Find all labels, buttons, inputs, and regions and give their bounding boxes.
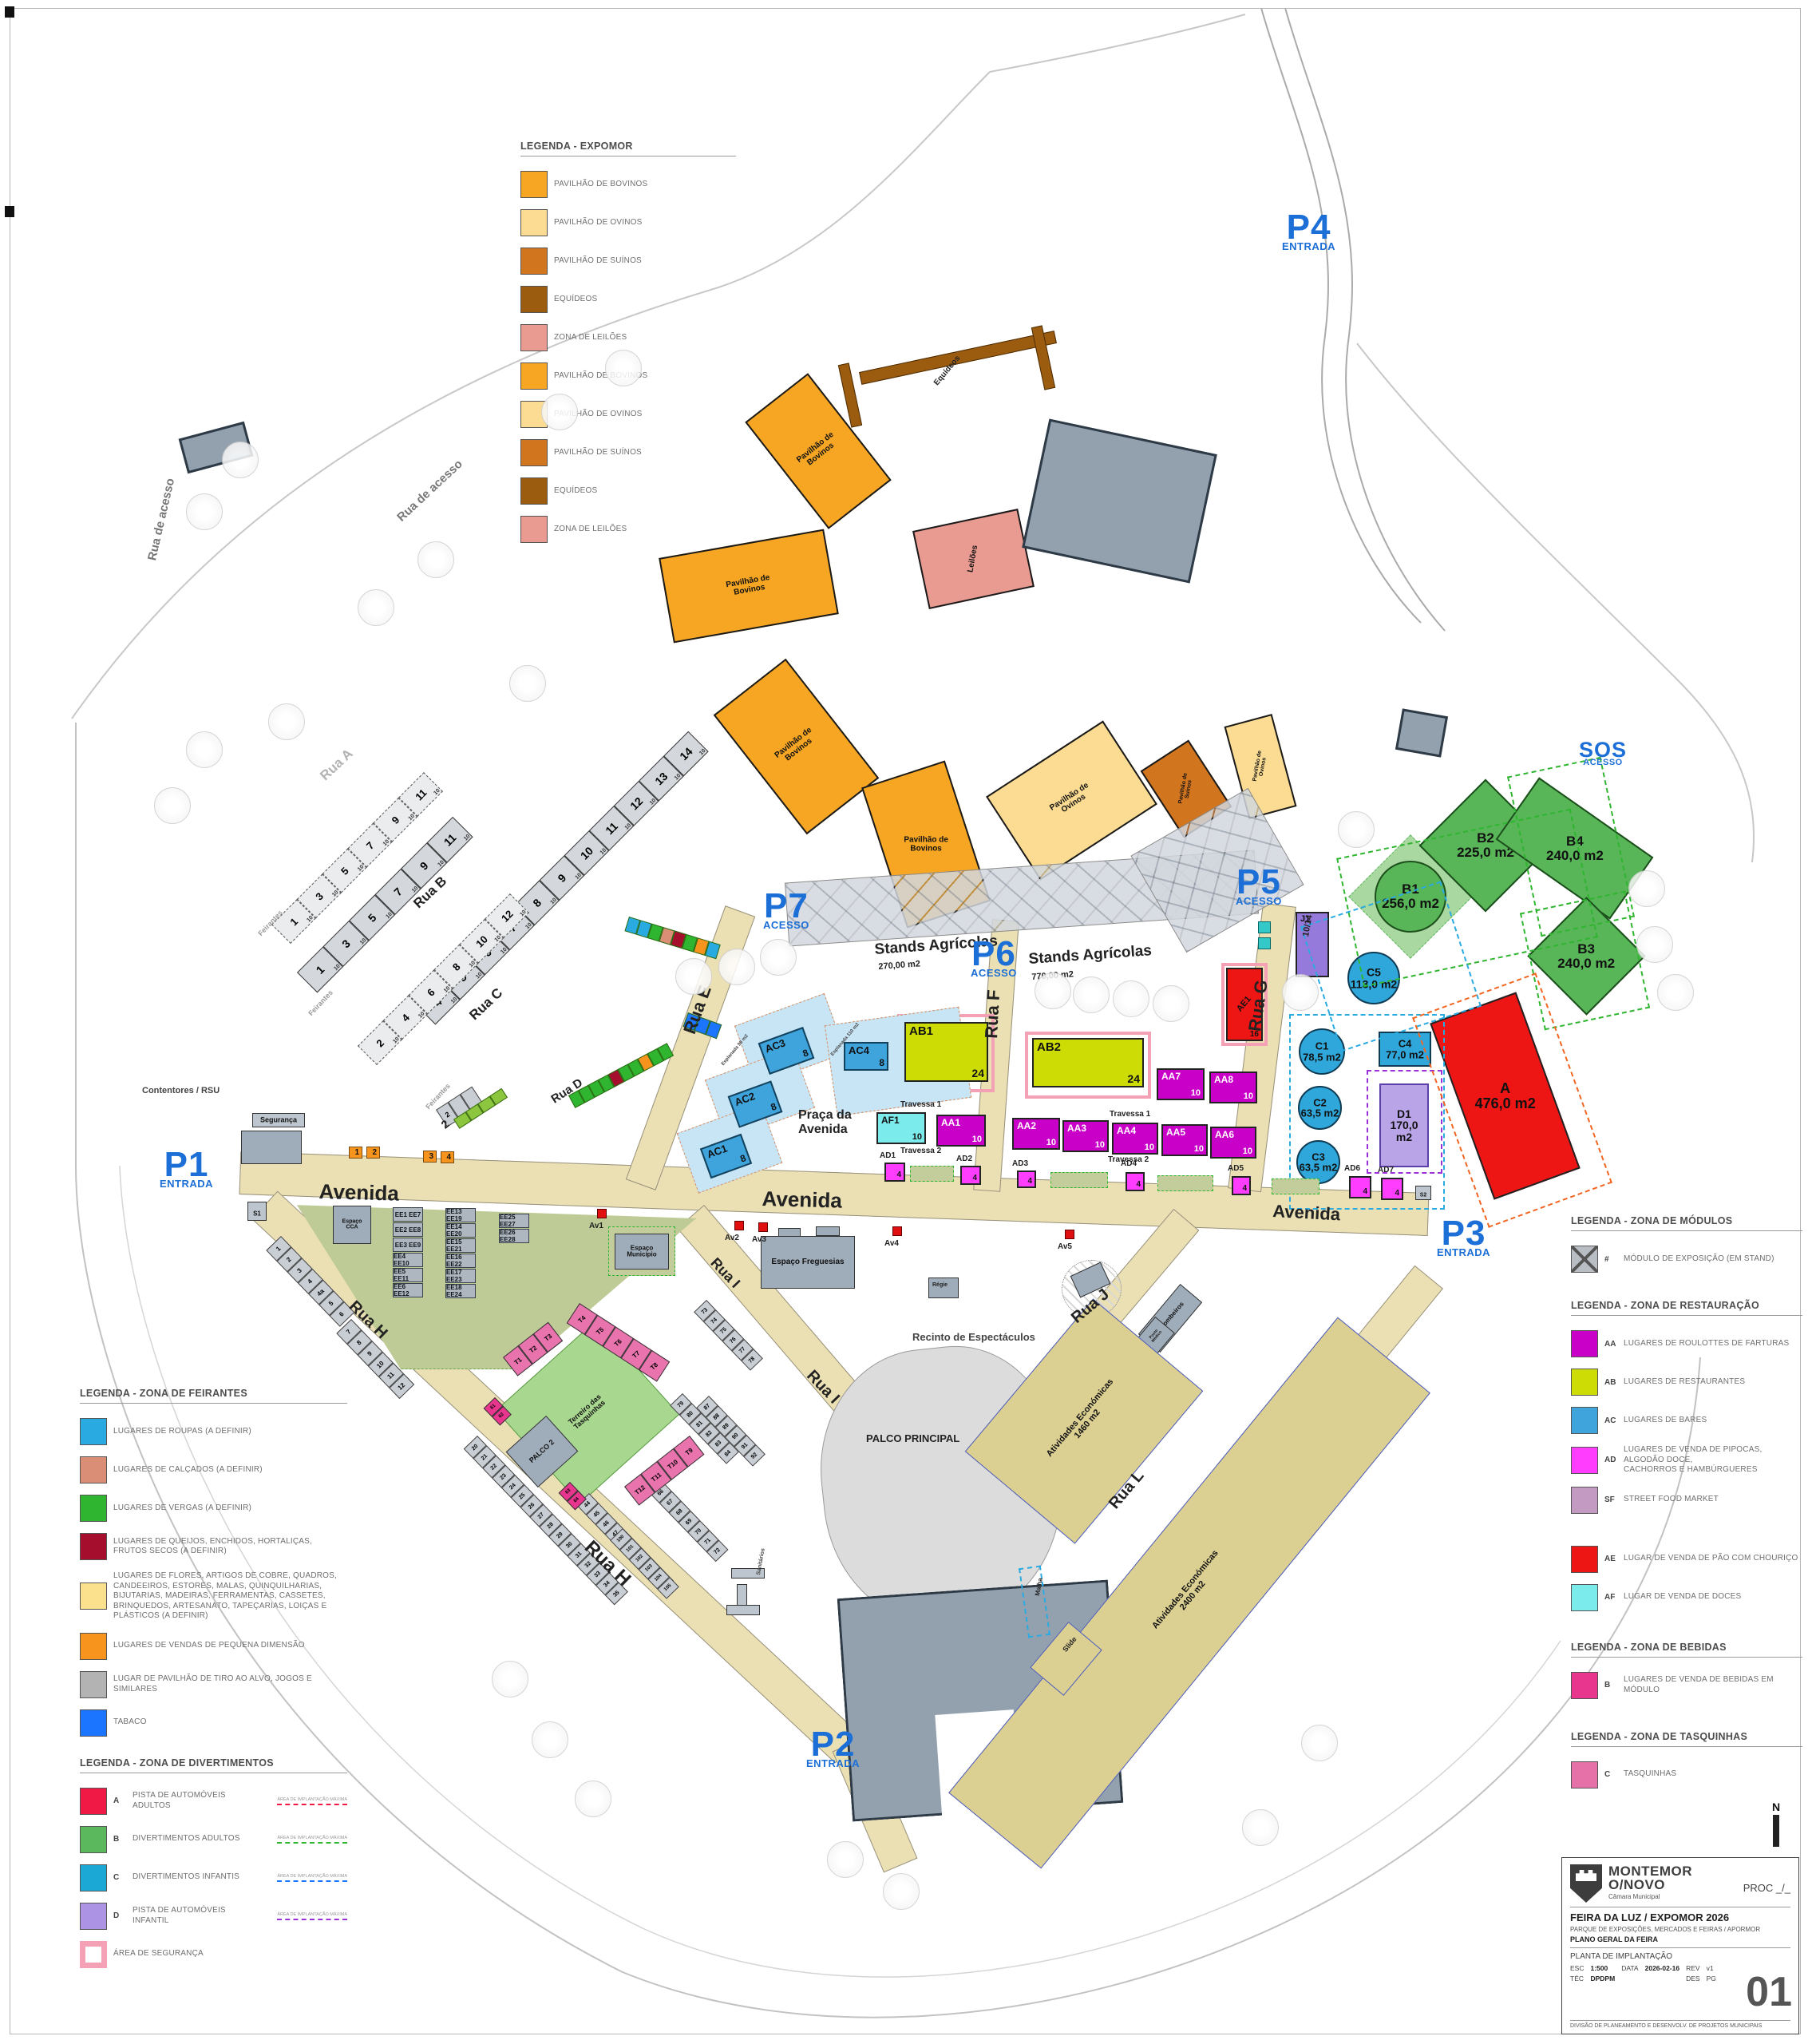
zone-ac4-label: AC4 — [849, 1045, 869, 1056]
tree — [1338, 811, 1375, 848]
swatch — [1571, 1672, 1598, 1699]
legend-security-item: ÁREA DE SEGURANÇA — [80, 1941, 347, 1968]
label: PISTA DE AUTOMÓVEIS INFANTIL — [133, 1906, 226, 1926]
zone-af1: AF110 — [876, 1112, 926, 1144]
lg-feirantes-items-item-7: TABACO — [80, 1709, 347, 1737]
seguranca-label-box-label: Segurança — [253, 1116, 304, 1123]
legend-left-column: LEGENDA - ZONA DE FEIRANTES LUGARES DE R… — [80, 1388, 347, 1968]
zone-aa6-label: AA6 — [1215, 1130, 1234, 1140]
av5-marker — [1065, 1230, 1074, 1239]
zone-af1-label: AF1 — [881, 1115, 900, 1126]
max-area-note: ÁREA DE IMPLANTAÇÃO MÁXIMA — [277, 1836, 347, 1844]
entrance-p6: P6ACESSO — [971, 939, 1017, 977]
omini-1: 1 — [349, 1147, 362, 1159]
tree — [760, 939, 797, 976]
tree — [1636, 926, 1673, 963]
zone-aa4-label: AA4 — [1117, 1126, 1136, 1136]
av4-marker — [892, 1226, 902, 1236]
tree — [883, 1873, 920, 1910]
data-value: 2026-02-16 — [1645, 1964, 1679, 1972]
espaco-cca-label: Espaço CCA — [334, 1219, 370, 1231]
entrance-p6-type: ACESSO — [971, 969, 1017, 977]
label: LUGARES DE VENDAS DE PEQUENA DIMENSÃO — [113, 1641, 305, 1651]
espaco-municipio-label: Espaço Município — [615, 1245, 668, 1258]
legend-bebidas-items: BLUGARES DE VENDA DE BEBIDAS EM MÓDULO — [1571, 1661, 1802, 1699]
tree — [1073, 976, 1110, 1013]
tree — [532, 1721, 568, 1758]
rev-label: REV — [1686, 1963, 1706, 1973]
code: B — [113, 1835, 126, 1844]
s1-box: S1 — [247, 1202, 267, 1221]
entrance-p7-type: ACESSO — [763, 921, 809, 929]
swatch — [80, 1495, 107, 1522]
map-label-pra-a-da-avenida: Praça da Avenida — [798, 1108, 852, 1136]
tree — [492, 1661, 528, 1697]
lg-feirantes-items-item-6: LUGAR DE PAVILHÃO DE TIRO AO ALVO, JOGOS… — [80, 1671, 347, 1698]
espaco-freguesias-tab2 — [816, 1226, 840, 1236]
legend-expomor-item-1: PAVILHÃO DE OVINOS — [520, 209, 736, 236]
swatch — [1571, 1761, 1598, 1788]
swatch — [80, 1941, 107, 1968]
label: TASQUINHAS — [1624, 1769, 1676, 1780]
tree — [509, 665, 546, 702]
zone-aa2-count: 10 — [1046, 1138, 1056, 1147]
legend-tasquinhas-title: LEGENDA - ZONA DE TASQUINHAS — [1571, 1731, 1802, 1747]
code: AB — [1604, 1378, 1617, 1387]
legend-restauracao-items: AALUGARES DE ROULOTTES DE FARTURASABLUGA… — [1571, 1319, 1802, 1611]
zone-aa8-count: 10 — [1244, 1091, 1253, 1101]
tree — [1242, 1809, 1279, 1846]
code: C — [113, 1873, 126, 1882]
lg-rest-items-item-6: AFLUGAR DE VENDA DE DOCES — [1571, 1584, 1802, 1611]
map-label-ad1: AD1 — [880, 1151, 896, 1160]
des-value: PG — [1707, 1973, 1723, 1983]
omini-3: 3 — [423, 1151, 437, 1163]
data-label: DATA — [1621, 1963, 1644, 1973]
code: C — [1604, 1770, 1617, 1779]
tree — [827, 1841, 864, 1878]
swatch — [80, 1633, 107, 1660]
legend-expomor-items: PAVILHÃO DE BOVINOSPAVILHÃO DE OVINOSPAV… — [520, 160, 736, 351]
omini-2-count: 2 — [372, 1148, 377, 1157]
legend-feirantes-items: LUGARES DE ROUPAS (A DEFINIR)LUGARES DE … — [80, 1407, 347, 1737]
lg-divert-items-item-0: APISTA DE AUTOMÓVEIS ADULTOSÁREA DE IMPL… — [80, 1788, 347, 1815]
max-area-note: ÁREA DE IMPLANTAÇÃO MÁXIMA — [277, 1797, 347, 1805]
map-label-travessa-2: Travessa 2 — [900, 1147, 941, 1155]
ee-cluster-3-cell-EE26 EE28: EE26 EE28 — [499, 1229, 529, 1243]
code: A — [113, 1796, 126, 1805]
zone-ad7-count: 4 — [1395, 1189, 1399, 1198]
label: LUGAR DE VENDA DE PÃO COM CHOURIÇO — [1624, 1554, 1798, 1564]
lg-rest-items-item-2: ACLUGARES DE BARES — [1571, 1407, 1802, 1434]
code: # — [1604, 1255, 1617, 1264]
kgrn-4 — [1272, 1178, 1319, 1194]
lg-expomor-item-2: PAVILHÃO DE SUÍNOS — [520, 439, 736, 466]
map-label-avenida: Avenida — [1272, 1202, 1341, 1225]
tree — [186, 731, 223, 768]
zone-ad1-count: 4 — [896, 1171, 901, 1179]
swatch — [520, 324, 548, 351]
label: PAVILHÃO DE SUÍNOS — [554, 448, 642, 458]
zone-aa7-label: AA7 — [1161, 1072, 1181, 1082]
lg-feirantes-items-item-5: LUGARES DE VENDAS DE PEQUENA DIMENSÃO — [80, 1633, 347, 1660]
legend-tasquinhas-items: CTASQUINHAS — [1571, 1750, 1802, 1788]
lg-rest-items-item-1: ABLUGARES DE RESTAURANTES — [1571, 1369, 1802, 1396]
code: AD — [1604, 1456, 1617, 1464]
tree — [1628, 870, 1665, 907]
lg-divert-items-item-1: BDIVERTIMENTOS ADULTOSÁREA DE IMPLANTAÇÃ… — [80, 1826, 347, 1853]
tree — [154, 787, 191, 824]
swatch — [520, 209, 548, 236]
label: LUGARES DE FLORES, ARTIGOS DE COBRE, QUA… — [113, 1571, 337, 1622]
map-label-av4: Av4 — [884, 1239, 899, 1248]
zone-ad5-count: 4 — [1242, 1184, 1247, 1193]
label: LUGARES DE VERGAS (A DEFINIR) — [113, 1503, 251, 1514]
pav-bovinos-2-label: Pavilhão de Bovinos — [667, 564, 832, 608]
swatch — [80, 1456, 107, 1483]
lg-rest-items-item-4: SFSTREET FOOD MARKET — [1571, 1487, 1802, 1514]
label: TABACO — [113, 1717, 147, 1728]
brand-text: MONTEMOR O/NOVO Câmara Municipal — [1608, 1864, 1692, 1900]
meta-table: ESC1:500 DATA2026-02-16 REVv1 TÉCDPDPM D… — [1570, 1963, 1723, 1983]
swatch — [520, 286, 548, 313]
entrance-p7: P7ACESSO — [763, 891, 809, 929]
lg-feirantes-items-item-2: LUGARES DE VERGAS (A DEFINIR) — [80, 1495, 347, 1522]
kgrn-3 — [1157, 1175, 1213, 1191]
sanitarios-3 — [726, 1605, 760, 1615]
tree — [186, 493, 223, 530]
swatch — [1571, 1407, 1598, 1434]
project-subtitle: PARQUE DE EXPOSIÇÕES, MERCADOS E FEIRAS … — [1570, 1926, 1790, 1933]
map-label-av5: Av5 — [1058, 1242, 1072, 1251]
label: LUGARES DE VENDA DE PIPOCAS, ALGODÃO DOC… — [1624, 1445, 1802, 1476]
zone-ad7: 4 — [1381, 1178, 1403, 1200]
pav-ovinos-2-label: Pavilhão de Ovinos — [1251, 743, 1271, 790]
zone-ad6-count: 4 — [1363, 1187, 1367, 1196]
jo1 — [1258, 921, 1271, 933]
zone-ad2-count: 4 — [972, 1174, 977, 1182]
rev-value: v1 — [1707, 1963, 1723, 1973]
label: ZONA DE LEILÕES — [554, 333, 627, 343]
atividades-1460-label: Atividades Económicas 1460 m2 — [1031, 1361, 1137, 1481]
zone-af1-count: 10 — [912, 1132, 922, 1142]
lg-rest-items-item-0: AALUGARES DE ROULOTTES DE FARTURAS — [1571, 1330, 1802, 1357]
zone-ad6: 4 — [1349, 1176, 1371, 1198]
ee-cluster-3-cell-EE25 EE27: EE25 EE27 — [499, 1214, 529, 1228]
atividades-2400-label: Atividades Económicas 2400 m2 — [1145, 1541, 1234, 1644]
legend-modulos-items: #MÓDULO DE EXPOSIÇÃO (EM STAND) — [1571, 1234, 1802, 1273]
map-label-avenida: Avenida — [318, 1180, 399, 1205]
tree — [417, 541, 454, 578]
swatch — [1571, 1584, 1598, 1611]
zone-ad3-count: 4 — [1027, 1177, 1032, 1186]
kgrn-2 — [1050, 1172, 1108, 1188]
swatch — [80, 1788, 107, 1815]
ee-cluster-2: EE13 EE19EE14 EE20EE15 EE21EE16 EE22EE17… — [445, 1208, 476, 1299]
jo2 — [1258, 937, 1271, 949]
fold-mark — [5, 6, 14, 18]
swatch — [80, 1533, 107, 1560]
espaco-cca: Espaço CCA — [333, 1206, 371, 1244]
zone-aa8-label: AA8 — [1214, 1075, 1233, 1085]
ee-cluster-1-cell-EE5 EE11: EE5 EE11 — [393, 1268, 423, 1282]
pav-suinos-label: Pavilhão de Suínos — [1176, 761, 1197, 817]
zona-leiloes-label: Leilões — [960, 507, 987, 612]
swatch — [1571, 1246, 1598, 1273]
espaco-municipio: Espaço Município — [615, 1234, 669, 1270]
map-label-travessa-1: Travessa 1 — [900, 1100, 941, 1109]
swatch — [1571, 1447, 1598, 1474]
municipality-logo — [1570, 1864, 1602, 1903]
label: LUGAR DE PAVILHÃO DE TIRO AO ALVO, JOGOS… — [113, 1674, 312, 1694]
legend-expomor-item-0: PAVILHÃO DE BOVINOS — [520, 171, 736, 198]
lg-feirantes-items-item-3: LUGARES DE QUEIJOS, ENCHIDOS, HORTALIÇAS… — [80, 1533, 347, 1560]
swatch — [80, 1671, 107, 1698]
map-label-rua-f: Rua F — [982, 989, 1003, 1039]
map-label-ad4: AD4 — [1121, 1159, 1137, 1168]
legend-expomor: LEGENDA - EXPOMOR PAVILHÃO DE BOVINOSPAV… — [520, 141, 736, 543]
ee-cluster-1-cell-EE1 EE7: EE1 EE7 — [393, 1207, 423, 1222]
zone-ac4-count: 8 — [879, 1057, 884, 1068]
omini-2: 2 — [366, 1147, 380, 1159]
tree — [605, 350, 642, 386]
tree — [358, 589, 394, 626]
code: AC — [1604, 1416, 1617, 1425]
proc-value: _/_ — [1776, 1882, 1790, 1894]
s2-box-label: S2 — [1416, 1187, 1430, 1199]
zone-ad5: 4 — [1232, 1176, 1251, 1195]
building-e — [1395, 708, 1448, 757]
swatch — [80, 1709, 107, 1737]
entrance-p7-code: P7 — [763, 891, 809, 921]
zone-aa3-count: 10 — [1095, 1140, 1105, 1150]
lg-modulos-items-item-0: #MÓDULO DE EXPOSIÇÃO (EM STAND) — [1571, 1246, 1802, 1273]
swatch — [1571, 1546, 1598, 1573]
legend-divertimentos-items: APISTA DE AUTOMÓVEIS ADULTOSÁREA DE IMPL… — [80, 1777, 347, 1968]
omini-1-count: 1 — [354, 1148, 359, 1157]
av2-marker — [734, 1221, 744, 1230]
entrance-p1: P1ENTRADA — [160, 1150, 213, 1188]
max-area-note: ÁREA DE IMPLANTAÇÃO MÁXIMA — [277, 1912, 347, 1920]
swatch — [80, 1418, 107, 1445]
s1-box-label: S1 — [248, 1205, 266, 1218]
code: AA — [1604, 1340, 1617, 1349]
zone-aa5: AA510 — [1161, 1124, 1208, 1156]
entrance-sos-type: ACESSO — [1579, 759, 1627, 766]
av3-marker — [758, 1222, 768, 1232]
ee-cluster-2-cell-EE15 EE21: EE15 EE21 — [445, 1238, 476, 1253]
zone-aa2: AA210 — [1012, 1118, 1060, 1150]
label: LUGARES DE CALÇADOS (A DEFINIR) — [113, 1465, 263, 1476]
swatch — [80, 1903, 107, 1930]
legend-modulos-title: LEGENDA - ZONA DE MÓDULOS — [1571, 1215, 1802, 1231]
map-label-ad5: AD5 — [1228, 1164, 1244, 1173]
map-label-travessa-1: Travessa 1 — [1110, 1110, 1150, 1119]
zone-ad3: 4 — [1017, 1171, 1036, 1188]
palco-2-label: PALCO 2 — [520, 1431, 564, 1472]
legend-bebidas-title: LEGENDA - ZONA DE BEBIDAS — [1571, 1642, 1802, 1658]
zone-ab2: AB224 — [1032, 1038, 1144, 1087]
zone-ac4: AC48 — [844, 1042, 888, 1071]
ee-cluster-1: EE1 EE7EE2 EE8EE3 EE9EE4 EE10EE5 EE11EE6… — [393, 1207, 423, 1298]
entrance-sos-code: SOS — [1579, 741, 1627, 759]
legend-expomor-title: LEGENDA - EXPOMOR — [520, 141, 736, 156]
seguranca-building — [241, 1131, 302, 1164]
entrance-p1-type: ENTRADA — [160, 1179, 213, 1188]
zone-ab1-label: AB1 — [909, 1025, 933, 1038]
lg-feirantes-items-item-4: LUGARES DE FLORES, ARTIGOS DE COBRE, QUA… — [80, 1571, 347, 1622]
ee-cluster-2-cell-EE18 EE24: EE18 EE24 — [445, 1284, 476, 1298]
label: EQUÍDEOS — [554, 295, 597, 305]
zone-aa3: AA310 — [1062, 1120, 1109, 1152]
zone-aa6-count: 10 — [1243, 1147, 1252, 1156]
map-label-recinto-de-espect-culos: Recinto de Espectáculos — [912, 1332, 1035, 1343]
zone-aa4-count: 10 — [1145, 1143, 1154, 1152]
map-label-avenida: Avenida — [762, 1187, 842, 1212]
entrance-p3-code: P3 — [1437, 1218, 1490, 1248]
zone-aa8: AA810 — [1209, 1072, 1257, 1103]
zone-ac1-count: 8 — [738, 1152, 747, 1164]
tree — [541, 394, 578, 430]
label: LUGARES DE ROULOTTES DE FARTURAS — [1624, 1339, 1789, 1349]
tree — [1282, 974, 1319, 1011]
ee-cluster-2-cell-EE14 EE20: EE14 EE20 — [445, 1223, 476, 1238]
zone-aa4: AA410 — [1112, 1123, 1158, 1155]
division-line: DIVISÃO DE PLANEAMENTO E DESENVOLV. DE P… — [1570, 2020, 1790, 2029]
label: LUGAR DE VENDA DE DOCES — [1624, 1592, 1741, 1602]
zone-ab1: AB124 — [904, 1022, 988, 1082]
zone-aa6: AA610 — [1210, 1127, 1256, 1159]
zone-aa7-count: 10 — [1191, 1088, 1201, 1098]
zone-ab2-count: 24 — [1127, 1072, 1140, 1085]
proc-label: PROC — [1743, 1882, 1774, 1894]
entrance-p3-type: ENTRADA — [1437, 1248, 1490, 1257]
legend-feirantes-title: LEGENDA - ZONA DE FEIRANTES — [80, 1388, 347, 1404]
s2-box: S2 — [1415, 1186, 1431, 1200]
entrance-p4-code: P4 — [1282, 212, 1335, 242]
drawing-type: PLANTA DE IMPLANTAÇÃO — [1570, 1952, 1790, 1961]
des-label: DES — [1686, 1973, 1706, 1983]
lg-expomor-item-3: EQUÍDEOS — [520, 477, 736, 505]
tec-label: TÉC — [1570, 1973, 1590, 1983]
swatch — [520, 516, 548, 543]
zone-aa3-label: AA3 — [1067, 1123, 1086, 1134]
project-title: FEIRA DA LUZ / EXPOMOR 2026 — [1570, 1911, 1790, 1923]
ee-cluster-2-cell-EE16 EE22: EE16 EE22 — [445, 1254, 476, 1268]
entrance-p5-type: ACESSO — [1236, 897, 1282, 905]
label: LUGARES DE VENDA DE BEBIDAS EM MÓDULO — [1624, 1675, 1802, 1695]
ee-cluster-1-cell-EE6 EE12: EE6 EE12 — [393, 1283, 423, 1297]
tree — [718, 949, 755, 985]
legend-divertimentos-title: LEGENDA - ZONA DE DIVERTIMENTOS — [80, 1757, 347, 1773]
entrance-p1-code: P1 — [160, 1150, 213, 1179]
plan-sheet: LEGENDA - EXPOMOR PAVILHÃO DE BOVINOSPAV… — [0, 0, 1812, 2044]
entrance-p5-code: P5 — [1236, 867, 1282, 897]
brand-line1: MONTEMOR — [1608, 1864, 1692, 1878]
code: B — [1604, 1681, 1617, 1689]
tree — [1035, 972, 1071, 1009]
swatch — [1571, 1487, 1598, 1514]
label: ÁREA DE SEGURANÇA — [113, 1949, 204, 1959]
zone-ad4-count: 4 — [1136, 1180, 1141, 1189]
max-area-note: ÁREA DE IMPLANTAÇÃO MÁXIMA — [277, 1874, 347, 1882]
entrance-p4: P4ENTRADA — [1282, 212, 1335, 251]
swatch — [520, 439, 548, 466]
omini-3-count: 3 — [429, 1152, 433, 1161]
label: PISTA DE AUTOMÓVEIS ADULTOS — [133, 1791, 226, 1811]
espaco-freguesias-label: Espaço Freguesias — [762, 1258, 854, 1267]
legend-expomor-item-4: ZONA DE LEILÕES — [520, 324, 736, 351]
outline-d1 — [1367, 1070, 1442, 1174]
swatch — [520, 362, 548, 390]
tec-value: DPDPM — [1590, 1975, 1615, 1983]
pav-bovinos-1-label: Pavilhão de Bovinos — [783, 421, 854, 481]
zone-aa2-label: AA2 — [1017, 1121, 1036, 1131]
zone-aa1-label: AA1 — [941, 1118, 960, 1128]
swatch — [80, 1826, 107, 1853]
zone-ac3-count: 8 — [801, 1047, 810, 1059]
swatch — [80, 1864, 107, 1891]
map-label-ad2: AD2 — [956, 1155, 972, 1163]
swatch — [1571, 1330, 1598, 1357]
tree — [222, 442, 259, 478]
map-label-ad7: AD7 — [1378, 1166, 1394, 1175]
entrance-p2: P2ENTRADA — [806, 1729, 860, 1768]
zone-ac2-count: 8 — [770, 1101, 778, 1113]
entrance-sos: SOSACESSO — [1579, 741, 1627, 766]
lg-rest-items-item-3: ADLUGARES DE VENDA DE PIPOCAS, ALGODÃO D… — [1571, 1445, 1802, 1476]
label: PAVILHÃO DE SUÍNOS — [554, 256, 642, 267]
map-label-ad6: AD6 — [1344, 1164, 1360, 1173]
entrance-p5: P5ACESSO — [1236, 867, 1282, 905]
pav-bovinos-3-label: Pavilhão de Bovinos — [756, 713, 836, 781]
tree — [1301, 1725, 1338, 1761]
lg-feirantes-items-item-1: LUGARES DE CALÇADOS (A DEFINIR) — [80, 1456, 347, 1483]
zone-aa7: AA710 — [1157, 1068, 1205, 1100]
label: LUGARES DE ROUPAS (A DEFINIR) — [113, 1427, 251, 1437]
fold-mark — [5, 206, 14, 217]
map-label-r-gie: Régie — [932, 1282, 948, 1289]
esc-label: ESC — [1570, 1963, 1590, 1973]
entrance-p2-code: P2 — [806, 1729, 860, 1759]
title-block: MONTEMOR O/NOVO Câmara Municipal PROC _/… — [1561, 1857, 1799, 2034]
label: STREET FOOD MARKET — [1624, 1495, 1719, 1505]
map-label-contentores-rsu: Contentores / RSU — [142, 1086, 220, 1095]
swatch — [520, 477, 548, 505]
legend-right-column: LEGENDA - ZONA DE MÓDULOS #MÓDULO DE EXP… — [1571, 1215, 1802, 1788]
label: MÓDULO DE EXPOSIÇÃO (EM STAND) — [1624, 1254, 1774, 1265]
zone-aa5-count: 10 — [1194, 1144, 1204, 1154]
zone-aa1: AA110 — [936, 1115, 986, 1147]
ee-cluster-2-cell-EE13 EE19: EE13 EE19 — [445, 1208, 476, 1222]
lg-divert-items-item-2: CDIVERTIMENTOS INFANTISÁREA DE IMPLANTAÇ… — [80, 1864, 347, 1891]
north-bar — [1773, 1815, 1779, 1847]
sheet-number: 01 — [1746, 1971, 1792, 2013]
lg-rest-items-item-5: AELUGAR DE VENDA DE PÃO COM CHOURIÇO — [1571, 1546, 1802, 1573]
legend-expomor-item-3: EQUÍDEOS — [520, 286, 736, 313]
label: LUGARES DE RESTAURANTES — [1624, 1377, 1745, 1388]
lg-divert-items-item-3: DPISTA DE AUTOMÓVEIS INFANTILÁREA DE IMP… — [80, 1903, 347, 1930]
lg-expomor-item-4: ZONA DE LEILÕES — [520, 516, 736, 543]
entrance-p2-type: ENTRADA — [806, 1759, 860, 1768]
code: D — [113, 1911, 126, 1920]
omini-4-count: 4 — [446, 1153, 451, 1162]
zone-aa1-count: 10 — [972, 1135, 982, 1144]
entrance-p4-type: ENTRADA — [1282, 242, 1335, 251]
swatch — [80, 1583, 107, 1610]
label: PAVILHÃO DE BOVINOS — [554, 180, 647, 190]
tree — [268, 703, 305, 740]
